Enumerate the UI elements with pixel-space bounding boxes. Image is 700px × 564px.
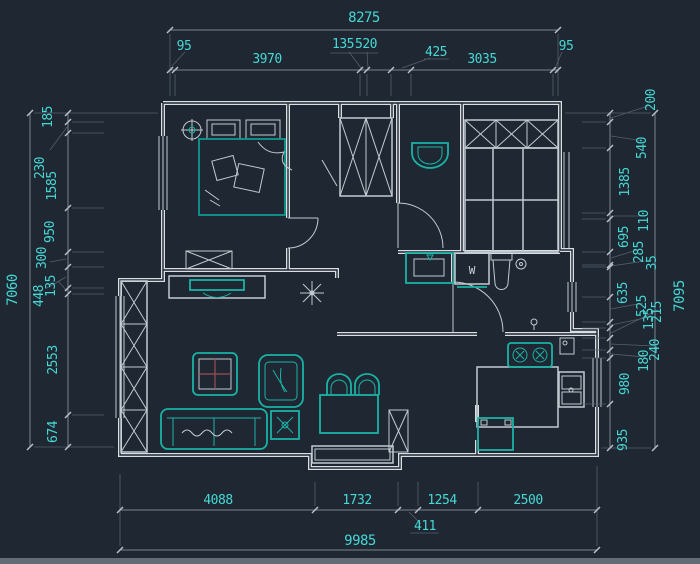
dim-left-seg: 674 [46, 420, 61, 443]
armchair [259, 355, 303, 407]
dim-right-seg: 215 [650, 301, 665, 323]
window-kitchen-right [593, 358, 601, 407]
window-right-mid [568, 282, 576, 312]
dining-furniture [312, 374, 408, 463]
bedroom2-bed [465, 148, 558, 252]
dim-right-seg: 635 [616, 282, 631, 304]
dining-table [320, 395, 378, 433]
floor-drain [516, 259, 526, 269]
dim-bottom: 9985 4088 1732 411 1254 2500 [117, 466, 600, 553]
window-bottom-edge [0, 558, 700, 564]
dim-right-overall: 7095 [672, 280, 688, 312]
floor-plan-canvas: W [0, 0, 700, 564]
dim-left-seg: 135 [44, 275, 59, 297]
cad-floorplan-viewport: W [0, 0, 700, 564]
dim-right-seg: 695 [617, 226, 632, 248]
dim-bottom-seg: 411 [414, 519, 436, 534]
bookcase [121, 281, 147, 452]
dining-chair [327, 374, 351, 395]
windows [116, 136, 601, 418]
door-leaf-closet [322, 160, 337, 186]
door-bathroom1 [398, 203, 443, 248]
walls [120, 103, 597, 468]
washing-machine: W [455, 253, 489, 287]
door-bathroom2 [453, 282, 503, 332]
washer-label: W [469, 264, 476, 277]
dim-right-seg: 35 [645, 256, 660, 271]
bed-pillows [205, 155, 264, 206]
stove [508, 343, 552, 367]
dim-left-seg: 1585 [45, 171, 60, 200]
dim-right-seg: 935 [616, 429, 631, 451]
dim-left-overall: 7060 [5, 274, 21, 306]
dim-top-seg: 95 [177, 39, 192, 54]
window-living-left [116, 296, 124, 418]
dim-top-seg: 3035 [467, 52, 496, 67]
tv-wall-cabinet [186, 251, 232, 269]
side-table [271, 411, 299, 439]
tv-console [169, 276, 265, 298]
dim-left-seg: 950 [43, 221, 58, 243]
sofa [161, 409, 267, 449]
doors [288, 160, 574, 354]
dim-bottom-seg: 1254 [427, 493, 457, 508]
dim-bottom-seg: 4088 [203, 493, 232, 508]
coffee-table [193, 353, 237, 395]
ceiling-lamp-icon [181, 119, 203, 141]
nightstand [246, 120, 280, 139]
window-bedroom2-right [564, 152, 569, 248]
door-bedroom1 [288, 218, 318, 248]
dim-top-seg: 135 [332, 37, 354, 52]
dim-top-seg: 425 [425, 45, 447, 60]
plant [300, 281, 324, 305]
dim-top-seg: 95 [559, 39, 574, 54]
dim-bottom-seg: 1732 [342, 493, 371, 508]
kitchen-sink [559, 372, 584, 407]
dim-top-seg: 3970 [252, 52, 281, 67]
shower-icon [531, 319, 537, 330]
dim-top-overall: 8275 [348, 10, 380, 26]
window-bedroom1-left [159, 136, 167, 210]
dining-chair [355, 374, 379, 395]
dim-top-seg: 520 [355, 37, 377, 52]
dim-top: 8275 95 3970 135 520 425 3035 95 [167, 10, 573, 96]
nightstand [207, 120, 240, 139]
toilet [491, 251, 512, 290]
bed [199, 139, 285, 215]
kitchen-furniture [477, 343, 584, 450]
dim-right-seg: 540 [635, 137, 650, 159]
dim-right-seg: 200 [644, 89, 659, 111]
entry-door-symbol [560, 338, 574, 354]
dim-left-seg: 2553 [46, 345, 61, 374]
bedroom1-furniture [181, 119, 292, 215]
hall-closet [340, 118, 392, 196]
dim-right-seg: 1385 [618, 167, 633, 196]
dim-bottom-seg: 2500 [513, 493, 542, 508]
dim-right-seg: 110 [637, 210, 652, 232]
dim-right-seg: 980 [618, 373, 633, 395]
dim-right-seg: 180 [637, 350, 652, 372]
fridge [478, 418, 513, 450]
bathroom1-toilet [412, 143, 448, 168]
dim-bottom-overall: 9985 [344, 533, 376, 549]
bedroom2-wardrobe [465, 120, 558, 148]
dim-left-seg: 185 [41, 106, 56, 128]
dim-left-seg: 300 [35, 247, 50, 269]
bay-bench [312, 446, 393, 463]
vanity-sink [406, 253, 454, 283]
